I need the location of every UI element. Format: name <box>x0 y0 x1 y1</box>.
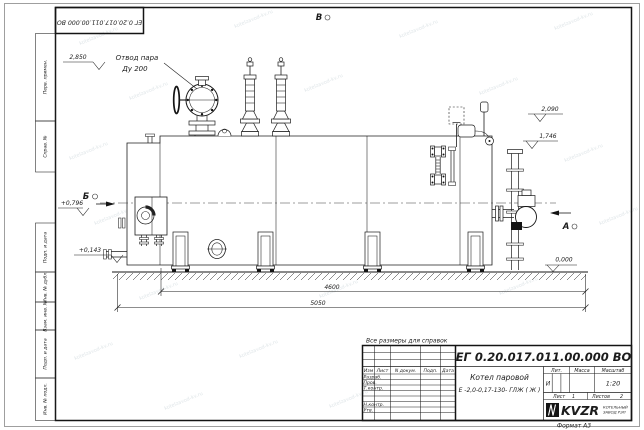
col-docnum: N докум. <box>395 368 416 374</box>
support-leg <box>364 232 382 272</box>
flipped-doc-number: ЕГ 0.20.017.011.00.000 ВО <box>57 19 142 26</box>
stamp-sprav-no: Справ. № <box>43 135 49 158</box>
watermark: kotelzavod-kv.ru <box>564 143 604 164</box>
company-line-2: ЗАВОД РЭП <box>603 410 626 415</box>
dim-5050-label: 5050 <box>310 300 325 307</box>
view-v-arrow: В <box>316 13 330 23</box>
watermark: kotelzavod-kv.ru <box>554 11 594 32</box>
left-margin-stamps: Перв. примен. Справ. № Подп. и дата Инв.… <box>36 34 56 421</box>
signature-table: Изм Лист N докум. Подп. Дата Разраб. Про… <box>363 346 456 421</box>
logo-text: KVZR <box>561 403 599 418</box>
elevation-2850: 2,850 <box>63 54 105 70</box>
watermark: kotelzavod-kv.ru <box>599 206 639 227</box>
stamp-inv-podl: Инв. № подл. <box>43 383 49 415</box>
format-label: Формат А3 <box>557 423 591 430</box>
elevation-0143-label: +0,143 <box>79 247 101 254</box>
support-leg <box>467 232 485 272</box>
watermark: kotelzavod-kv.ru <box>129 81 169 102</box>
safety-valve-1 <box>241 58 260 136</box>
drawing-sheet: kotelzavod-kv.ru kotelzavod-kv.ru kotelz… <box>0 0 644 430</box>
col-izm: Изм <box>364 368 374 374</box>
watermark: kotelzavod-kv.ru <box>69 141 109 162</box>
col-podp: Подп. <box>424 368 438 374</box>
reference-note: Все размеры для справок <box>366 338 448 345</box>
sheet-label: Лист <box>552 394 565 400</box>
elevation-0143: +0,143 <box>74 247 123 263</box>
product-name-2: Е -2,0-0,17-130- ГЛЖ ( Ж ) <box>459 387 541 394</box>
lit-mass-scale: Лит. Масса Масштаб И 1:20 <box>544 367 632 393</box>
title-block: Все размеры для справок Изм Лист N докум… <box>363 338 632 421</box>
row-prov: Пров. <box>364 380 377 386</box>
watermark: kotelzavod-kv.ru <box>304 73 344 94</box>
steam-outlet-label-2: Ду 200 <box>121 65 148 73</box>
view-a-label: А <box>562 222 570 232</box>
steam-outlet-valve <box>174 77 218 137</box>
mass-label: Масса <box>574 368 589 374</box>
flipped-doc-number-box: ЕГ 0.20.017.011.00.000 ВО <box>56 8 144 34</box>
dim-4600-label: 4600 <box>324 284 339 291</box>
support-leg <box>172 232 190 272</box>
stamp-podp-data-1: Подп. и дата <box>43 232 49 263</box>
watermark: kotelzavod-kv.ru <box>74 341 114 362</box>
view-v-label: В <box>316 13 322 23</box>
stamp-perv-primen: Перв. примен. <box>43 60 49 95</box>
col-data: Дата <box>441 368 454 374</box>
elevation-1746-label: 1,746 <box>539 133 556 140</box>
valve-handwheel <box>174 87 180 114</box>
elevation-2090: 2,090 <box>528 106 563 122</box>
steam-outlet-label-1: Отвод пара <box>116 54 159 62</box>
stamp-vzam-inv: Взам. инв. № <box>43 300 49 331</box>
elevation-0000: 0,000 <box>545 257 577 272</box>
elevation-0000-label: 0,000 <box>555 257 572 264</box>
watermark: kotelzavod-kv.ru <box>79 26 119 47</box>
elevation-2090-label: 2,090 <box>541 106 558 113</box>
support-leg <box>257 232 275 272</box>
sheet-counters: Лист 1 Листов 2 <box>544 393 632 401</box>
view-b-label: Б <box>83 192 90 202</box>
col-list: Лист <box>376 368 389 374</box>
row-utv: Утв. <box>364 408 374 414</box>
steam-outlet-callout: Отвод пара Ду 200 <box>116 54 197 89</box>
scale-label: Масштаб <box>602 368 625 374</box>
lit-value: И <box>546 381 551 388</box>
company-logo: KVZR КОТЕЛЬНЫЙ ЗАВОД РЭП <box>546 403 628 418</box>
watermark: kotelzavod-kv.ru <box>239 339 279 360</box>
watermark: kotelzavod-kv.ru <box>234 9 274 30</box>
sheets-value: 2 <box>620 394 623 400</box>
elevation-0796: +0,796 <box>58 200 89 216</box>
sheet-value: 1 <box>572 394 575 400</box>
view-b-arrow: Б <box>83 192 115 207</box>
stamp-inv-dubl: Инв. № дубл. <box>43 271 49 302</box>
elevation-1746: 1,746 <box>523 133 558 149</box>
doc-number: ЕГ 0.20.017.011.00.000 ВО <box>456 350 632 364</box>
view-a-arrow: А <box>550 211 577 233</box>
ground-line <box>112 272 588 280</box>
watermark: kotelzavod-kv.ru <box>399 19 439 40</box>
row-razrab: Разраб. <box>364 375 382 381</box>
feed-pump <box>492 190 537 230</box>
stamp-podp-data-2: Подп. и дата <box>43 338 49 369</box>
watermark: kotelzavod-kv.ru <box>164 391 204 412</box>
scale-value: 1:20 <box>606 380 621 388</box>
watermark: kotelzavod-kv.ru <box>479 76 519 97</box>
sheets-label: Листов <box>591 394 610 400</box>
product-name-1: Котел паровой <box>470 373 529 382</box>
safety-valve-2 <box>272 58 291 136</box>
row-nkontr: Н.контр. <box>364 402 385 408</box>
row-tkontr: Т.контр. <box>364 386 384 392</box>
lit-label: Лит. <box>550 368 562 374</box>
engineering-drawing: kotelzavod-kv.ru kotelzavod-kv.ru kotelz… <box>0 0 644 430</box>
lifting-lug <box>218 129 231 136</box>
elevation-0796-label: +0,796 <box>61 200 83 207</box>
elevation-2850-label: 2,850 <box>69 54 86 61</box>
